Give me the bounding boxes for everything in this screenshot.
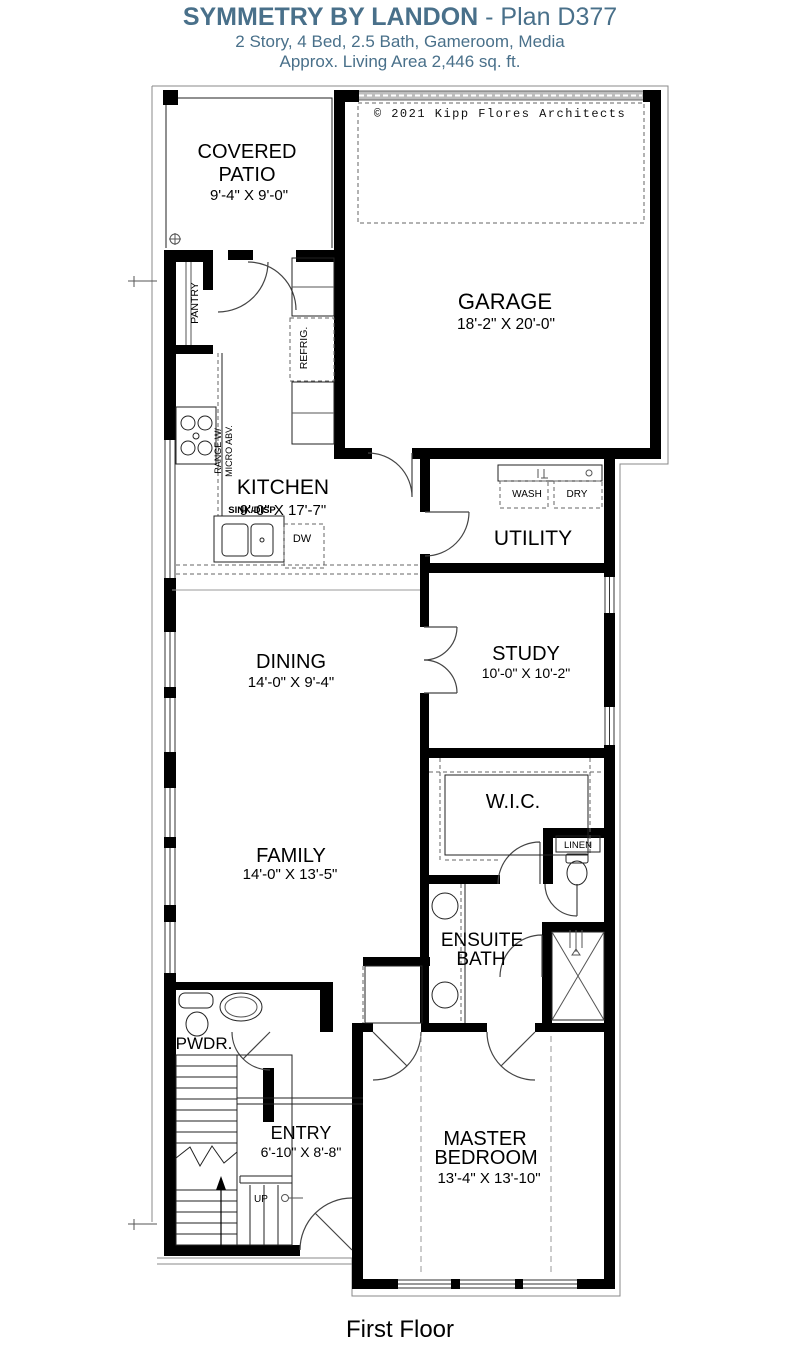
entry-header-line — [237, 1098, 363, 1104]
room-label-covered-patio-2: PATIO — [218, 164, 275, 186]
label-dishwasher: DW — [293, 533, 312, 545]
window-icon — [460, 1278, 515, 1290]
door-arc — [424, 660, 457, 693]
room-dims-master: 13'-4" X 13'-10" — [437, 1170, 540, 1187]
dishwasher-icon — [284, 524, 324, 568]
label-range-2: MICRO ABV. — [224, 425, 234, 477]
door-arc — [300, 1198, 352, 1250]
room-label-master-2: BEDROOM — [434, 1147, 537, 1169]
room-label-entry: ENTRY — [271, 1123, 332, 1143]
range-icon — [176, 407, 216, 464]
label-pantry: PANTRY — [189, 282, 201, 324]
room-label-covered-patio: COVERED — [198, 141, 297, 163]
master-closet — [365, 966, 422, 1023]
window-icon — [523, 1278, 577, 1290]
label-sink-disposal: SINK/DISP — [228, 505, 276, 516]
room-dims-garage: 18'-2" X 20'-0" — [457, 316, 555, 333]
copyright-text: © 2021 Kipp Flores Architects — [374, 107, 626, 121]
label-dryer: DRY — [567, 489, 588, 500]
door-arc — [232, 1032, 270, 1070]
door-arc — [487, 1032, 535, 1080]
garage-door-clearance — [358, 103, 644, 223]
sink-icon — [432, 982, 458, 1008]
stair-break-line — [176, 1146, 237, 1166]
room-label-utility: UTILITY — [494, 527, 572, 550]
room-dims-entry: 6'-10" X 8'-8" — [261, 1144, 342, 1160]
room-label-wic: W.I.C. — [486, 791, 540, 813]
toilet-icon — [186, 1012, 208, 1036]
room-label-kitchen: KITCHEN — [237, 476, 329, 499]
door-arc — [248, 262, 296, 310]
door-arc — [373, 1032, 421, 1080]
floor-plan-drawing: © 2021 Kipp Flores Architects COVERED PA… — [0, 0, 800, 1349]
door-arc — [368, 453, 412, 497]
utility-fixtures — [498, 465, 602, 508]
door-arc — [425, 512, 469, 556]
window-icon — [163, 698, 177, 752]
window-icon — [163, 632, 177, 687]
centerline-marker-icon — [128, 276, 157, 287]
label-linen: LINEN — [564, 840, 592, 851]
window-icon — [603, 707, 616, 745]
bath-fixtures — [363, 758, 604, 1023]
refrigerator-icon — [290, 318, 334, 381]
centerline-marker-icon — [128, 1219, 157, 1230]
door-arc — [545, 884, 577, 916]
label-refrigerator: REFRIG. — [298, 327, 310, 370]
room-dims-covered-patio: 9'-4" X 9'-0" — [210, 187, 288, 204]
room-label-powder: PWDR. — [176, 1034, 233, 1053]
room-label-dining: DINING — [256, 651, 326, 673]
window-icon — [163, 788, 177, 837]
room-label-ensuite: ENSUITE — [441, 930, 523, 951]
room-dims-family: 14'-0" X 13'-5" — [243, 866, 338, 883]
room-dims-dining: 14'-0" X 9'-4" — [248, 674, 334, 691]
room-label-garage: GARAGE — [458, 289, 552, 314]
door-arc — [498, 842, 540, 884]
label-stairs-up: UP — [254, 1194, 268, 1205]
powder-fixtures — [179, 993, 262, 1036]
window-icon — [163, 922, 177, 973]
floor-label: First Floor — [346, 1316, 454, 1343]
label-range-1: RANGE W/ — [213, 428, 223, 474]
room-dims-study: 10'-0" X 10'-2" — [482, 665, 570, 681]
floor-plan-page: SYMMETRY BY LANDON - Plan D377 2 Story, … — [0, 0, 800, 1349]
sink-icon — [432, 893, 458, 919]
window-icon — [163, 440, 177, 578]
toilet-icon — [567, 861, 587, 885]
label-washer: WASH — [512, 489, 542, 500]
room-label-ensuite-2: BATH — [456, 949, 505, 970]
window-icon — [163, 848, 177, 905]
window-icon — [398, 1278, 451, 1290]
room-label-family: FAMILY — [256, 845, 326, 867]
window-icon — [603, 577, 616, 613]
door-arc — [218, 262, 268, 312]
room-label-study: STUDY — [492, 643, 560, 665]
walls — [163, 90, 661, 1289]
door-arc — [424, 627, 457, 660]
